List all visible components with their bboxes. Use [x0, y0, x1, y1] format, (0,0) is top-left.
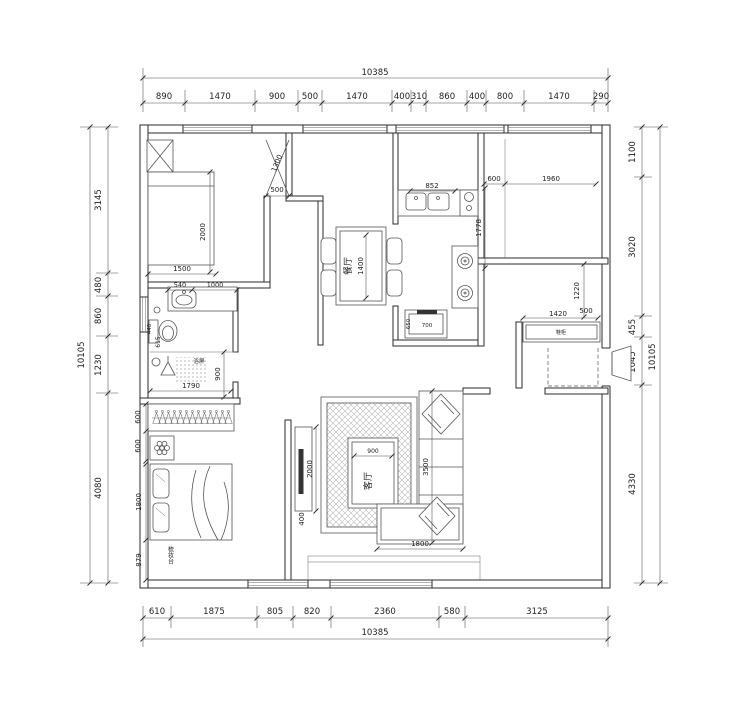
- sink-basin: [406, 193, 426, 210]
- dim-shoe-cabinet-width: 1420: [549, 310, 567, 318]
- dim-top-seg: 400: [469, 92, 485, 102]
- entry: [523, 322, 631, 386]
- dim-left-seg: 4080: [94, 477, 104, 499]
- dim-bedroom1-door-offset: 500: [270, 186, 283, 194]
- dim-top-seg: 890: [156, 92, 172, 102]
- dim-top-seg: 500: [302, 92, 318, 102]
- dim-top-seg: 1470: [209, 92, 231, 102]
- dim-left-seg: 1230: [94, 354, 104, 376]
- dim-top-seg: 400: [394, 92, 410, 102]
- sink-basin: [428, 193, 449, 210]
- stove: [452, 246, 478, 308]
- dim-top-seg: 800: [497, 92, 513, 102]
- dim-bedroom1-door: 1300: [270, 153, 284, 173]
- dim-right-seg: 3020: [628, 236, 638, 258]
- dim-bottom-total: 10385: [361, 628, 388, 638]
- side-table: [150, 436, 174, 460]
- dim-bedroom3-offset: 600: [487, 175, 500, 183]
- dim-entry-depth: 1220: [573, 282, 581, 300]
- dim-right-total: 10105: [648, 343, 658, 370]
- dim-bed2-width: 1800: [135, 493, 143, 511]
- kitchen: [398, 190, 478, 338]
- dim-chain-top: 10385 890 1470 900 500 1470 400 310 860 …: [141, 68, 611, 112]
- dim-top-total: 10385: [361, 68, 388, 78]
- dim-left-seg: 860: [94, 308, 104, 324]
- dim-sofa-length: 3500: [422, 458, 430, 476]
- dim-counter-width: 700: [422, 323, 433, 329]
- dim-bottom-seg: 1875: [203, 607, 225, 617]
- dim-shower-depth: 900: [214, 367, 222, 380]
- dim-left-seg: 480: [94, 277, 104, 293]
- bedroom-bottomleft: [150, 436, 232, 540]
- door-swing-dashed: [548, 348, 598, 386]
- chair: [321, 238, 336, 264]
- dim-basin: 540: [174, 281, 186, 289]
- dim-side-table: 600: [134, 439, 142, 452]
- dim-top-seg: 1470: [548, 92, 570, 102]
- dim-kitchen-length: 1778: [475, 219, 483, 237]
- sofa-chaise: [377, 504, 463, 544]
- dim-sink: 852: [425, 182, 438, 190]
- dim-top-seg: 1470: [346, 92, 368, 102]
- shower-drain: [152, 358, 160, 366]
- dim-bedroom3-window: 1960: [542, 175, 560, 183]
- pillow: [153, 503, 169, 532]
- floor-plan-drawing: 10385 890 1470 900 500 1470 400 310 860 …: [0, 0, 740, 713]
- floor-drain: [154, 307, 160, 313]
- dim-wardrobe-depth: 600: [134, 410, 142, 423]
- closet-corridor: [148, 404, 234, 431]
- dim-chain-bottom: 10385 610 1875 805 820 2360 580 3125: [141, 606, 611, 647]
- label-dressing-table: 梳妆台: [167, 545, 174, 565]
- label-shower-screen: 浴屏: [193, 357, 205, 365]
- dim-coffee-table: 900: [367, 448, 379, 455]
- dim-toilet-width: 440: [147, 323, 153, 334]
- entry-door-icon: [612, 346, 631, 381]
- dim-bottom-seg: 2360: [374, 607, 396, 617]
- dim-bed1-width: 1500: [173, 265, 191, 273]
- dim-sofa-chaise: 1800: [411, 540, 429, 548]
- chair: [387, 270, 402, 296]
- dim-top-seg: 310: [411, 92, 427, 102]
- dim-bottom-seg: 610: [149, 607, 165, 617]
- dim-right-seg: 4330: [628, 473, 638, 495]
- dim-left-seg: 3145: [94, 189, 104, 211]
- dim-bottom-seg: 805: [267, 607, 283, 617]
- chair: [321, 270, 336, 296]
- dim-toilet-offset: 615: [155, 336, 162, 348]
- dim-shower-width: 1790: [182, 382, 200, 390]
- room-label-dining: 餐厅: [342, 257, 354, 275]
- dim-top-seg: 860: [439, 92, 455, 102]
- dim-entry-offset: 500: [579, 307, 592, 315]
- dim-tv-cabinet-length: 2000: [306, 460, 314, 478]
- dim-counter-depth: 650: [406, 318, 412, 329]
- label-shoe-cabinet: 鞋柜: [556, 329, 566, 336]
- room-label-living: 客厅: [362, 472, 374, 490]
- dim-left-total: 10105: [77, 341, 87, 368]
- dim-bottom-seg: 580: [444, 607, 460, 617]
- dim-right-seg: 1100: [628, 141, 638, 163]
- chair: [387, 238, 402, 264]
- floor-plan-page: 10385 890 1470 900 500 1470 400 310 860 …: [0, 0, 740, 713]
- tv: [299, 449, 304, 494]
- dim-bottom-seg: 820: [304, 607, 320, 617]
- dim-right-seg: 455: [628, 319, 638, 335]
- corner-unit: [460, 190, 478, 216]
- living-room: [295, 391, 463, 544]
- dim-dresser: 879: [135, 553, 143, 566]
- dim-basin-offset: 1000: [207, 281, 224, 289]
- dim-top-seg: 900: [269, 92, 285, 102]
- dim-dining-table: 1400: [357, 257, 365, 275]
- dim-top-seg: 290: [593, 92, 609, 102]
- dim-chain-right: 10105 1100 3020 455 1045 4330: [628, 125, 668, 586]
- dim-chain-left: 10105 3145 480 860 1230 4080: [77, 125, 118, 586]
- dim-bottom-seg: 3125: [526, 607, 548, 617]
- shower-head-icon: [161, 356, 175, 375]
- dim-tv-cabinet-depth: 400: [298, 512, 306, 525]
- dim-bed1-length: 2000: [199, 223, 207, 241]
- pillow: [153, 469, 169, 498]
